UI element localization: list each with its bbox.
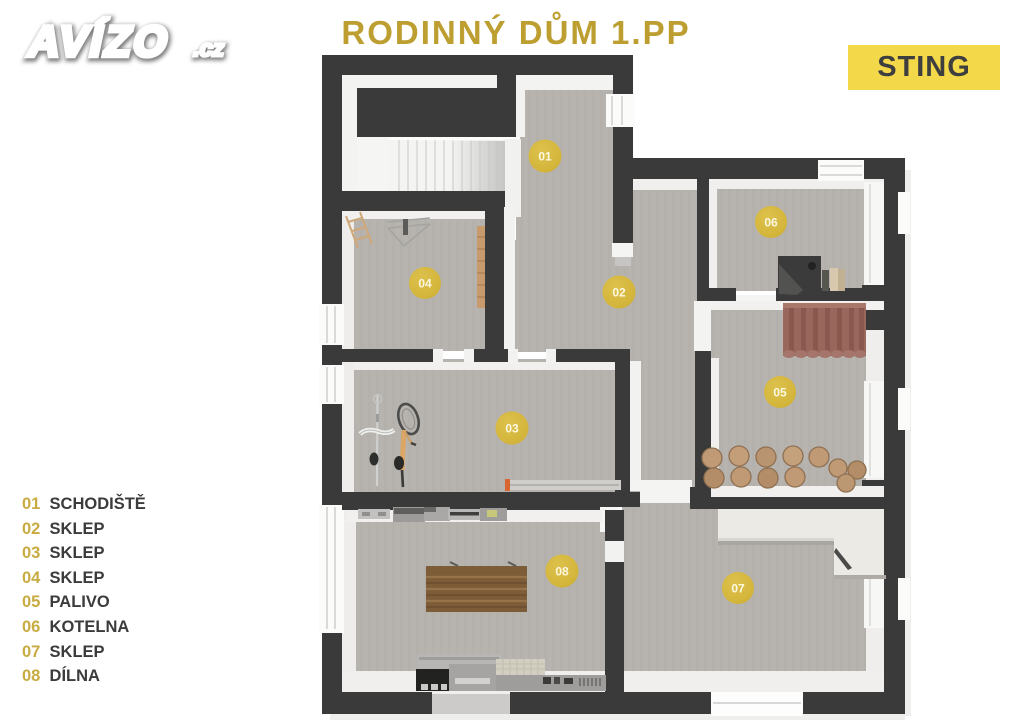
- svg-text:06: 06: [764, 216, 778, 230]
- svg-text:04: 04: [418, 277, 432, 291]
- svg-text:01: 01: [538, 150, 552, 164]
- svg-text:02: 02: [612, 286, 626, 300]
- svg-text:08: 08: [555, 565, 569, 579]
- svg-text:07: 07: [731, 582, 745, 596]
- svg-text:05: 05: [773, 386, 787, 400]
- svg-text:03: 03: [505, 422, 519, 436]
